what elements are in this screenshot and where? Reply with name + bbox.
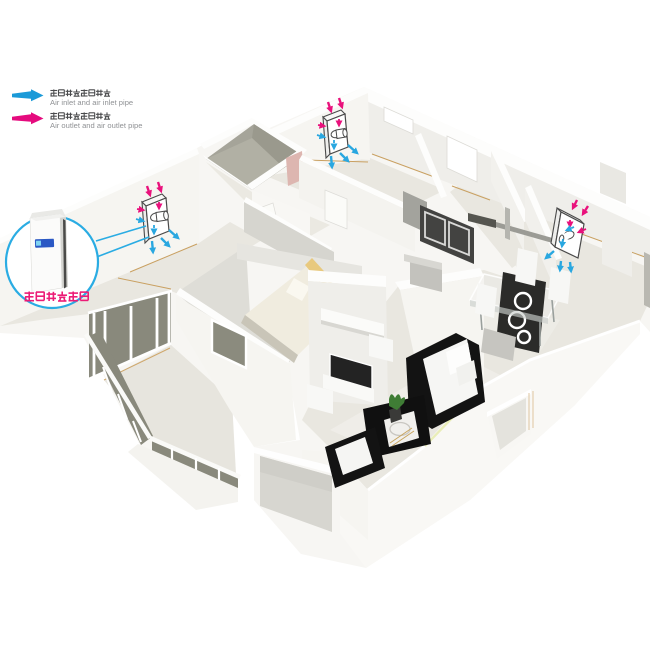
svg-text:Air inlet and air inlet pipe: Air inlet and air inlet pipe <box>50 98 133 107</box>
svg-text:Air outlet and air outlet pipe: Air outlet and air outlet pipe <box>50 121 142 130</box>
